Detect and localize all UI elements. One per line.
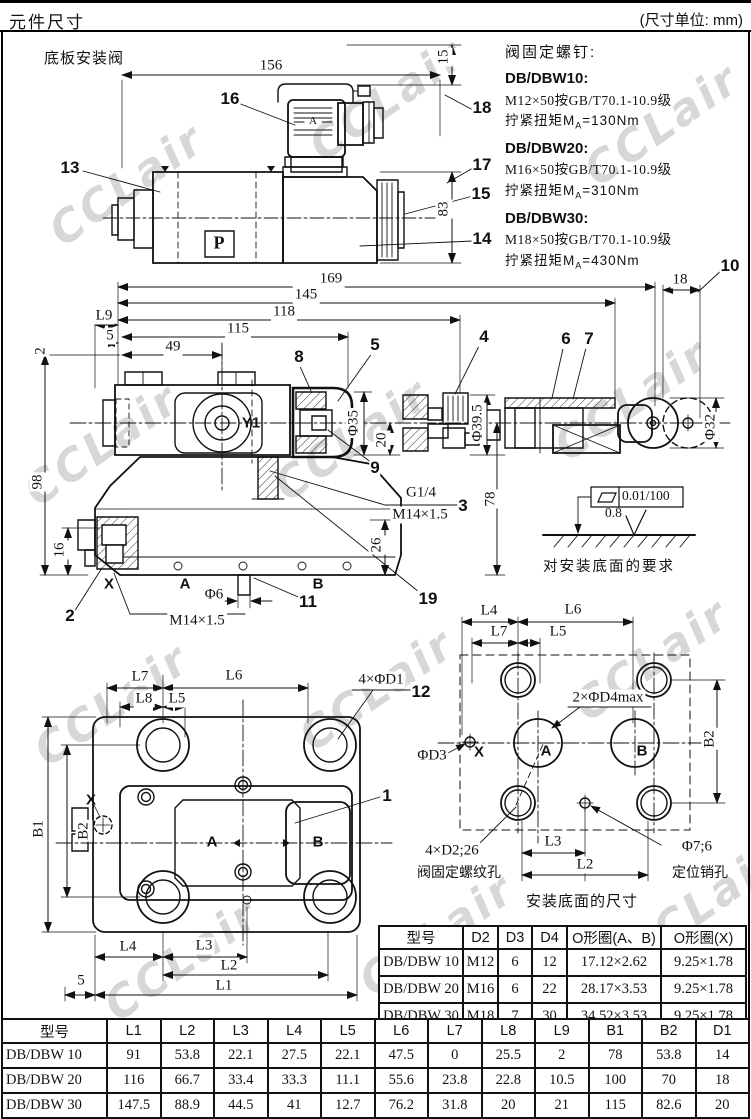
dim-label: X xyxy=(86,792,96,809)
callout-number: 2 xyxy=(64,606,75,626)
callout-number: 8 xyxy=(293,347,304,367)
dim-label: B xyxy=(313,576,324,593)
table-cell: 21 xyxy=(535,1093,589,1118)
callout-number: 11 xyxy=(298,592,318,612)
table-cell: 78 xyxy=(589,1043,643,1068)
dim-label: 2×ΦD4max xyxy=(570,690,645,707)
dim-label: L5 xyxy=(167,691,188,708)
dim-label: Φ35 xyxy=(346,408,363,438)
callout-number: 1 xyxy=(381,786,392,806)
screw-note-spec: M18×50按GB/T70.1-10.9级 xyxy=(505,232,748,248)
surface-requirement-caption: 对安装底面的要求 xyxy=(543,555,708,576)
table-cell: 12 xyxy=(532,949,567,976)
screw-note-model: DB/DBW20: xyxy=(505,140,748,157)
table-cell: 82.6 xyxy=(642,1093,696,1118)
table-cell: 55.6 xyxy=(375,1068,429,1093)
table-cell: 2 xyxy=(535,1043,589,1068)
screw-note-spec: M16×50按GB/T70.1-10.9级 xyxy=(505,162,748,178)
dim-label: 定位销孔 xyxy=(672,862,728,882)
table-cell: 27.5 xyxy=(268,1043,322,1068)
top-border-rule xyxy=(0,0,751,3)
dim-label: A xyxy=(541,743,552,760)
table-cell: 31.8 xyxy=(428,1093,482,1118)
table-cell: 0 xyxy=(428,1043,482,1068)
table-row: DB/DBW 10M1261217.12×2.629.25×1.78 xyxy=(379,949,746,976)
callout-number: 15 xyxy=(471,184,492,204)
table-cell: 70 xyxy=(642,1068,696,1093)
header-row: 型号D2D3D4O形圈(A、B)O形圈(X) xyxy=(379,926,746,949)
dim-label: 115 xyxy=(225,321,251,338)
table-cell: 88.9 xyxy=(161,1093,215,1118)
dim-label: 49 xyxy=(164,339,183,356)
dim-label: 26 xyxy=(369,536,386,555)
roughness-value: 0.8 xyxy=(605,505,622,521)
dim-label: L6 xyxy=(563,602,584,619)
column-header: L2 xyxy=(161,1019,215,1043)
screw-note-torque: 拧紧扭矩MA=430Nm xyxy=(505,253,748,271)
dim-label: L2 xyxy=(219,958,240,975)
callout-number: 18 xyxy=(472,98,493,118)
oring-spec-table: 型号D2D3D4O形圈(A、B)O形圈(X)DB/DBW 10M1261217.… xyxy=(378,925,747,1031)
dim-label: B1 xyxy=(31,818,48,840)
dim-label: A xyxy=(180,576,191,593)
column-header: B1 xyxy=(589,1019,643,1043)
table-cell: 116 xyxy=(107,1068,161,1093)
column-header: O形圈(A、B) xyxy=(567,926,661,949)
datasheet-page: CCLairCCLairCCLairCCLairCCLairCCLairCCLa… xyxy=(0,0,751,1119)
callout-number: 9 xyxy=(369,458,380,478)
table-cell: DB/DBW 10 xyxy=(2,1043,107,1068)
screw-note-torque: 拧紧扭矩MA=130Nm xyxy=(505,113,748,131)
dim-label: X xyxy=(474,744,484,761)
table-cell: 12.7 xyxy=(321,1093,375,1118)
dim-label: 4×ΦD1 xyxy=(356,672,405,689)
callout-number: 4 xyxy=(478,327,489,347)
table-cell: M16 xyxy=(463,976,498,1003)
table-cell: DB/DBW 20 xyxy=(379,976,463,1003)
p-port-mark: P xyxy=(214,233,225,254)
dim-label: 5 xyxy=(104,328,116,345)
table-cell: 44.5 xyxy=(214,1093,268,1118)
header-row: 型号L1L2L3L4L5L6L7L8L9B1B2D1 xyxy=(2,1019,749,1043)
dim-label: 15 xyxy=(436,48,453,67)
dim-label: 2 xyxy=(33,345,50,357)
dim-label: 5 xyxy=(75,973,87,990)
table-cell: 66.7 xyxy=(161,1068,215,1093)
table-cell: DB/DBW 30 xyxy=(2,1093,107,1118)
table-row: DB/DBW 2011666.733.433.311.155.623.822.8… xyxy=(2,1068,749,1093)
table-cell: DB/DBW 10 xyxy=(379,949,463,976)
table-cell: 14 xyxy=(696,1043,750,1068)
table-cell: 23.8 xyxy=(428,1068,482,1093)
dim-label: 78 xyxy=(483,490,500,509)
table-cell: 22 xyxy=(532,976,567,1003)
callout-number: 7 xyxy=(583,329,594,349)
table-cell: 20 xyxy=(482,1093,536,1118)
screw-note-spec: M12×50按GB/T70.1-10.9级 xyxy=(505,93,748,109)
dim-label: X xyxy=(104,576,114,593)
table-cell: 22.1 xyxy=(214,1043,268,1068)
dim-label: L8 xyxy=(134,691,155,708)
table-cell: 22.1 xyxy=(321,1043,375,1068)
callout-number: 5 xyxy=(369,335,380,355)
dim-label: Φ32 xyxy=(703,412,720,442)
table-cell: 100 xyxy=(589,1068,643,1093)
table-row: DB/DBW 109153.822.127.522.147.5025.52785… xyxy=(2,1043,749,1068)
dim-label: Y1 xyxy=(242,415,260,432)
callout-number: 6 xyxy=(560,329,571,349)
table-cell: M12 xyxy=(463,949,498,976)
column-header: O形圈(X) xyxy=(661,926,746,949)
table-cell: 53.8 xyxy=(642,1043,696,1068)
table-cell: 25.5 xyxy=(482,1043,536,1068)
dim-label: 20 xyxy=(374,431,391,450)
dim-label: L9 xyxy=(94,308,115,325)
dim-label: 118 xyxy=(271,304,297,321)
callout-number: 13 xyxy=(60,158,81,178)
table-cell: 28.17×3.53 xyxy=(567,976,661,1003)
table-cell: 6 xyxy=(498,976,532,1003)
screw-notes-title: 阀固定螺钉: xyxy=(505,44,748,61)
table-cell: 20 xyxy=(696,1093,750,1118)
table-cell: 147.5 xyxy=(107,1093,161,1118)
screw-note-model: DB/DBW30: xyxy=(505,210,748,227)
column-header: L7 xyxy=(428,1019,482,1043)
table-cell: 33.3 xyxy=(268,1068,322,1093)
callout-number: 3 xyxy=(457,496,468,516)
dim-label: L3 xyxy=(194,938,215,955)
table-cell: 41 xyxy=(268,1093,322,1118)
dim-label: L4 xyxy=(479,603,500,620)
column-header: D1 xyxy=(696,1019,750,1043)
column-header: D3 xyxy=(498,926,532,949)
screw-note-model: DB/DBW10: xyxy=(505,70,748,87)
table-cell: 53.8 xyxy=(161,1043,215,1068)
dim-label: L3 xyxy=(543,834,564,851)
dim-label: B xyxy=(637,743,648,760)
column-header: L1 xyxy=(107,1019,161,1043)
table-cell: 115 xyxy=(589,1093,643,1118)
table-cell: 33.4 xyxy=(214,1068,268,1093)
dim-label: B2 xyxy=(702,728,719,750)
column-header: L5 xyxy=(321,1019,375,1043)
callout-number: 16 xyxy=(220,89,241,109)
column-header: D2 xyxy=(463,926,498,949)
dim-label: 145 xyxy=(293,287,320,304)
column-header: L3 xyxy=(214,1019,268,1043)
table-cell: 47.5 xyxy=(375,1043,429,1068)
column-header: L9 xyxy=(535,1019,589,1043)
dim-label: L6 xyxy=(224,668,245,685)
callout-number: 12 xyxy=(411,682,432,702)
callout-number: 19 xyxy=(418,589,439,609)
dim-label: 18 xyxy=(671,272,690,289)
column-header: L6 xyxy=(375,1019,429,1043)
dim-label: 阀固定螺纹孔 xyxy=(417,862,501,882)
dim-label: 83 xyxy=(436,200,453,219)
table-cell: 18 xyxy=(696,1068,750,1093)
flatness-tolerance-value: 0.01/100 xyxy=(622,488,670,504)
dim-label: M14×1.5 xyxy=(167,613,227,630)
dim-label: 4×D2;26 xyxy=(423,843,480,860)
dim-label: 156 xyxy=(258,58,285,75)
dim-label: Φ7;6 xyxy=(680,839,714,856)
table-cell: 91 xyxy=(107,1043,161,1068)
connector-a-mark: A xyxy=(309,115,317,127)
dim-label: L7 xyxy=(130,669,151,686)
dim-label: L4 xyxy=(118,939,139,956)
column-header: D4 xyxy=(532,926,567,949)
dim-label: M14×1.5 xyxy=(390,507,450,524)
column-header: B2 xyxy=(642,1019,696,1043)
table-row: DB/DBW 30147.588.944.54112.776.231.82021… xyxy=(2,1093,749,1118)
screw-note-torque: 拧紧扭矩MA=310Nm xyxy=(505,183,748,201)
dim-label: L7 xyxy=(489,624,510,641)
valve-side-view-drawing xyxy=(95,40,485,275)
dim-label: L5 xyxy=(548,624,569,641)
table-cell: DB/DBW 20 xyxy=(2,1068,107,1093)
dim-label: ΦD3 xyxy=(415,748,448,765)
table-cell: 76.2 xyxy=(375,1093,429,1118)
table-cell: 22.8 xyxy=(482,1068,536,1093)
dim-label: 169 xyxy=(318,271,345,288)
table-cell: 11.1 xyxy=(321,1068,375,1093)
dim-label: B xyxy=(313,834,324,851)
column-header: L4 xyxy=(268,1019,322,1043)
callout-number: 17 xyxy=(472,155,493,175)
table-cell: 9.25×1.78 xyxy=(661,949,746,976)
dim-label: Φ39.5 xyxy=(470,402,487,443)
dim-label: 98 xyxy=(30,473,47,492)
mounting-face-caption: 安装底面的尺寸 xyxy=(512,890,652,911)
table-row: DB/DBW 20M1662228.17×3.539.25×1.78 xyxy=(379,976,746,1003)
dim-label: 16 xyxy=(52,541,69,560)
column-header: L8 xyxy=(482,1019,536,1043)
table-cell: 6 xyxy=(498,949,532,976)
dim-label: L1 xyxy=(214,978,235,995)
column-header: 型号 xyxy=(2,1019,107,1043)
dimensions-table: 型号L1L2L3L4L5L6L7L8L9B1B2D1DB/DBW 109153.… xyxy=(1,1018,750,1119)
screw-notes: 阀固定螺钉: DB/DBW10: M12×50按GB/T70.1-10.9级 拧… xyxy=(505,44,748,271)
callout-number: 10 xyxy=(720,256,741,276)
dim-label: Φ6 xyxy=(203,587,225,604)
dim-label: G1/4 xyxy=(404,485,438,502)
callout-number: 14 xyxy=(472,229,493,249)
column-header: 型号 xyxy=(379,926,463,949)
dim-label: A xyxy=(207,834,218,851)
table-cell: 9.25×1.78 xyxy=(661,976,746,1003)
table-cell: 17.12×2.62 xyxy=(567,949,661,976)
dim-label: B2 xyxy=(76,820,93,842)
dim-label: L2 xyxy=(575,857,596,874)
unit-note: (尺寸单位: mm) xyxy=(640,9,743,30)
table-cell: 10.5 xyxy=(535,1068,589,1093)
